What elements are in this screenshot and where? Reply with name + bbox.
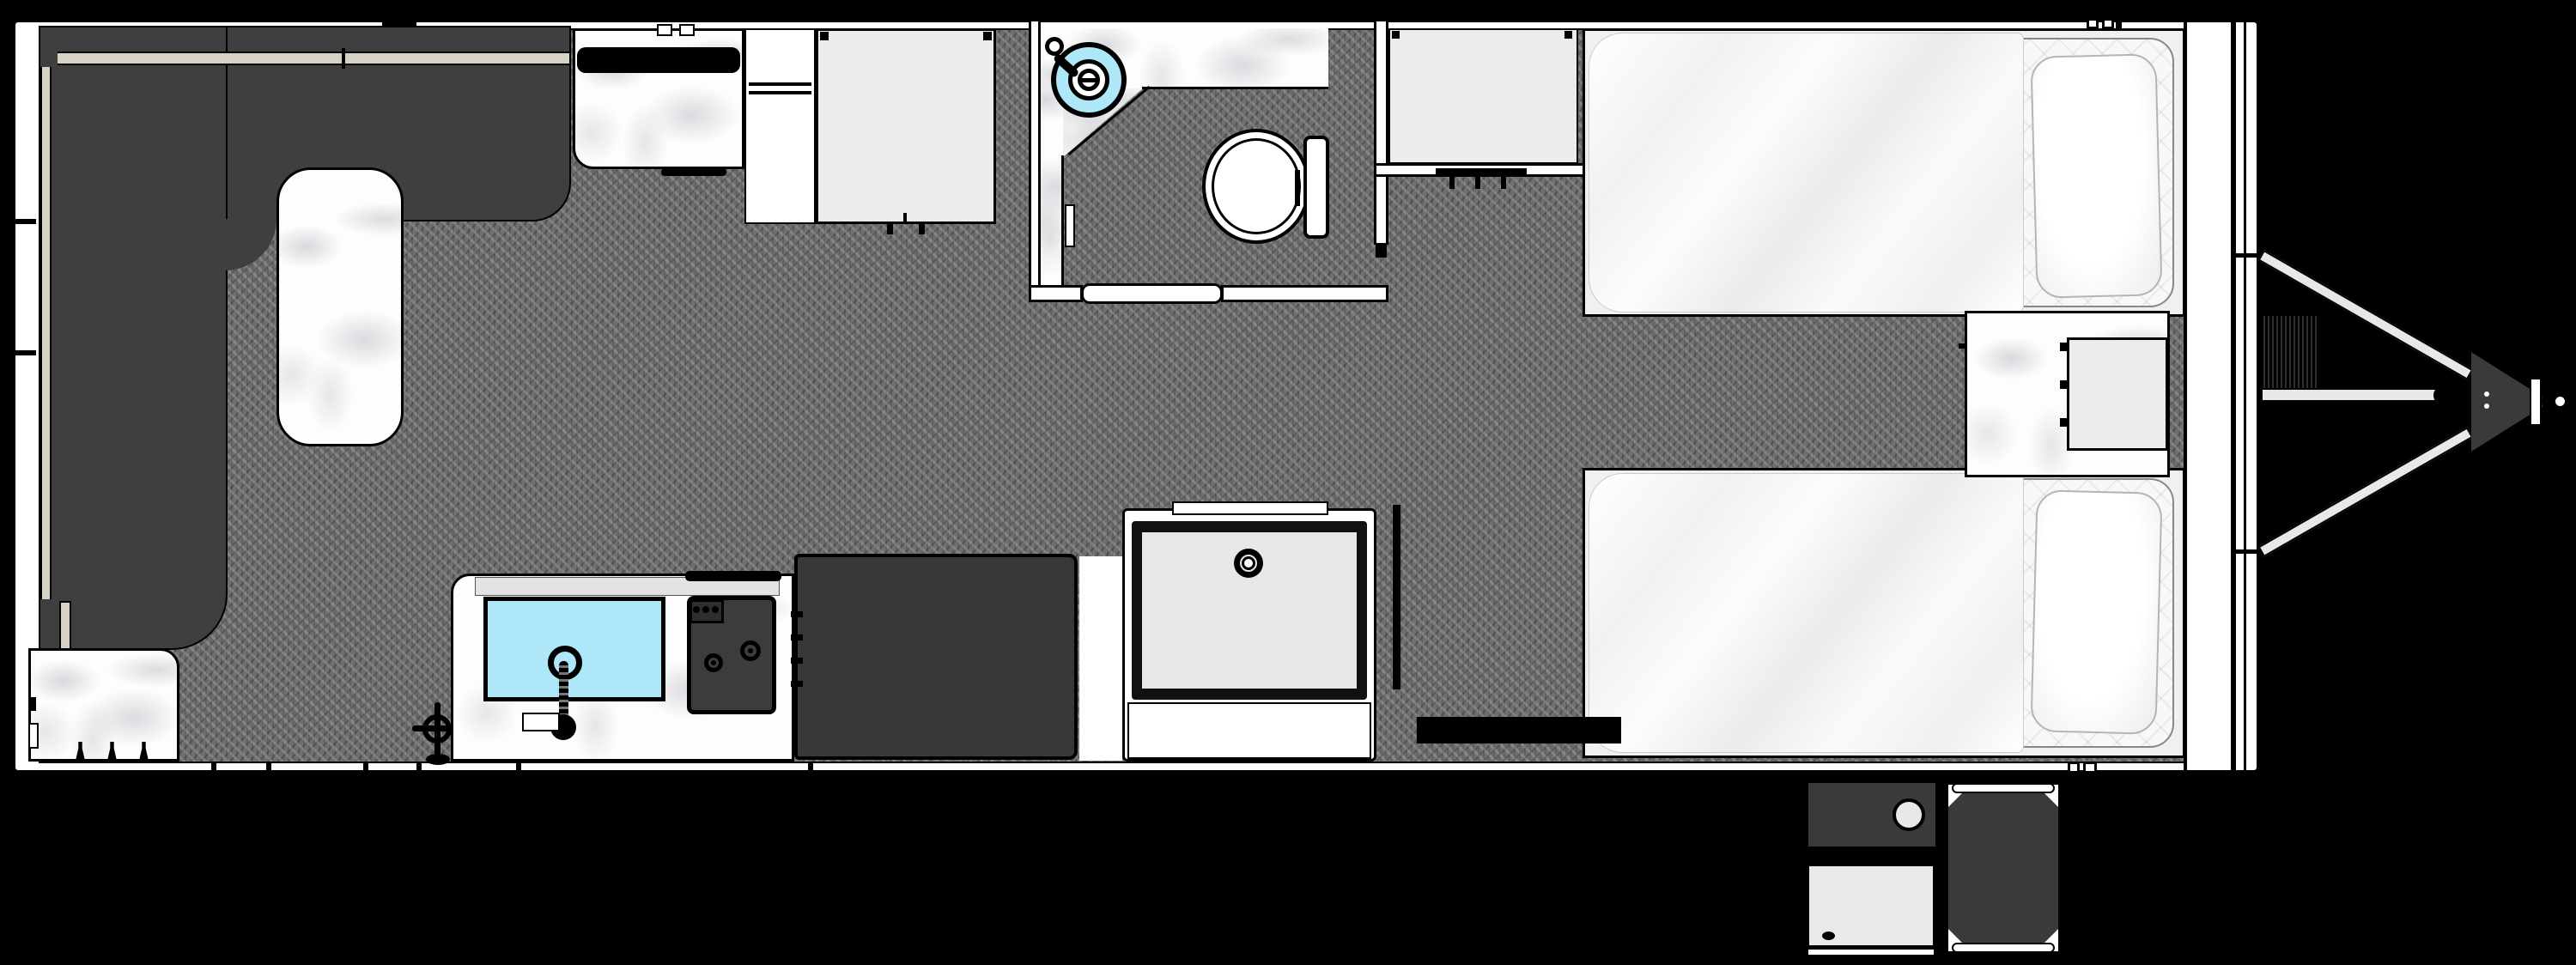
dinette-table [276,167,404,446]
drain-ring-inner [1242,556,1255,570]
hanger-hook [1449,176,1455,189]
pantry-shelf-line [749,82,811,86]
wall-seam-tick [516,763,521,784]
floorplan-stage [0,0,2576,965]
hinge-icon [1564,31,1572,39]
tongue-bar-lower [2258,427,2474,557]
hanger-hook [1501,176,1506,189]
wall-seam-tick-left [15,350,36,355]
front-cap-line [2244,20,2246,773]
wall-seam-tick [808,763,813,784]
step-rail [1952,943,2055,953]
sofa-arm-end [59,601,71,650]
vanity-edge-line [1142,87,1328,89]
bathroom-wall-left [1029,21,1041,302]
corner-counter [28,648,179,762]
toilet-hinge [1295,170,1300,206]
bathroom-wall-bottom-left [1029,285,1083,302]
hanger-rod-icon [1436,168,1527,176]
pantry [744,28,816,224]
wall-seam-tick [363,763,368,784]
shower-top-flange [1172,501,1328,515]
wall-seam-tick-left [15,219,36,224]
door-bottom-strip [1808,950,1934,955]
propane-area [2263,316,2318,388]
wall-seam-tick [2068,762,2080,774]
vanity-edge-line [1061,155,1064,285]
sink-drain-bar [1079,78,1098,82]
soap-tray [522,713,560,731]
fridge-foot [887,224,893,234]
hitch-ball-center [2555,397,2565,406]
knob-icon [693,606,700,613]
pillow-bottom [2030,489,2162,735]
hinge-icon [820,32,829,40]
entry-steps [1945,781,2062,955]
bathroom-wall-bottom-right [1221,285,1388,302]
refrigerator [816,28,996,224]
fridge-foot [919,224,925,234]
pillow-top [2030,53,2162,299]
bathroom-faucet-icon [1045,37,1064,56]
blanket-top [1589,33,2024,313]
hinge-icon [2060,343,2067,351]
front-cap-seam-top [2236,253,2259,258]
burner-dot [748,648,753,653]
wall-seam-tick [2083,762,2097,774]
cabinet-handle [657,24,672,36]
wall-seam-tick [266,763,271,784]
nightstand-inset-cabinet [2067,337,2168,451]
nightstand-handle [1959,343,1967,349]
counter-bracket [28,723,39,749]
bathroom-wall-right [1374,21,1388,245]
front-cap-gap [2231,20,2236,773]
counter-outlet [28,697,36,711]
hinge-icon [1392,31,1400,39]
drawer-handle [661,168,726,176]
step-rail [1952,783,2055,793]
toilet-bowl-inner [1212,138,1301,234]
door-handle [1822,932,1835,940]
shower-apron [1127,702,1371,759]
wall-end-cap [1376,243,1387,258]
wardrobe-floor [1388,28,1578,164]
pantry-shelf-line [749,91,811,94]
oven-handle [685,571,781,581]
hanger-hook [1475,176,1480,189]
sofa-top-ledge [58,52,569,65]
coupler-bolt [2484,391,2489,397]
cabinet-filler [1079,556,1122,761]
foot-of-bed-wall [1417,717,1621,743]
sofa-left-section [39,26,228,650]
fridge-door-split [903,213,907,224]
bathroom-door [1081,283,1223,304]
hinge-icon [983,32,992,40]
sofa-cushion-divider [342,48,345,69]
tongue-jack-knob [2433,385,2453,405]
blanket-bottom [1589,473,2024,753]
partition-bar [1393,505,1400,689]
tall-cabinet [794,554,1078,760]
towel-bar [1065,204,1075,247]
window-bar [577,47,740,73]
door-window-icon [1893,798,1925,831]
coupler-plate [2530,378,2542,426]
toilet-tank [1303,136,1329,239]
burner-dot [711,660,716,665]
sofa-left-ledge [40,67,52,599]
front-cap-seam-bottom [2236,549,2259,554]
wall-seam-tick [211,763,216,784]
hinge-icon [791,611,803,617]
cabinet-handle [679,24,695,36]
